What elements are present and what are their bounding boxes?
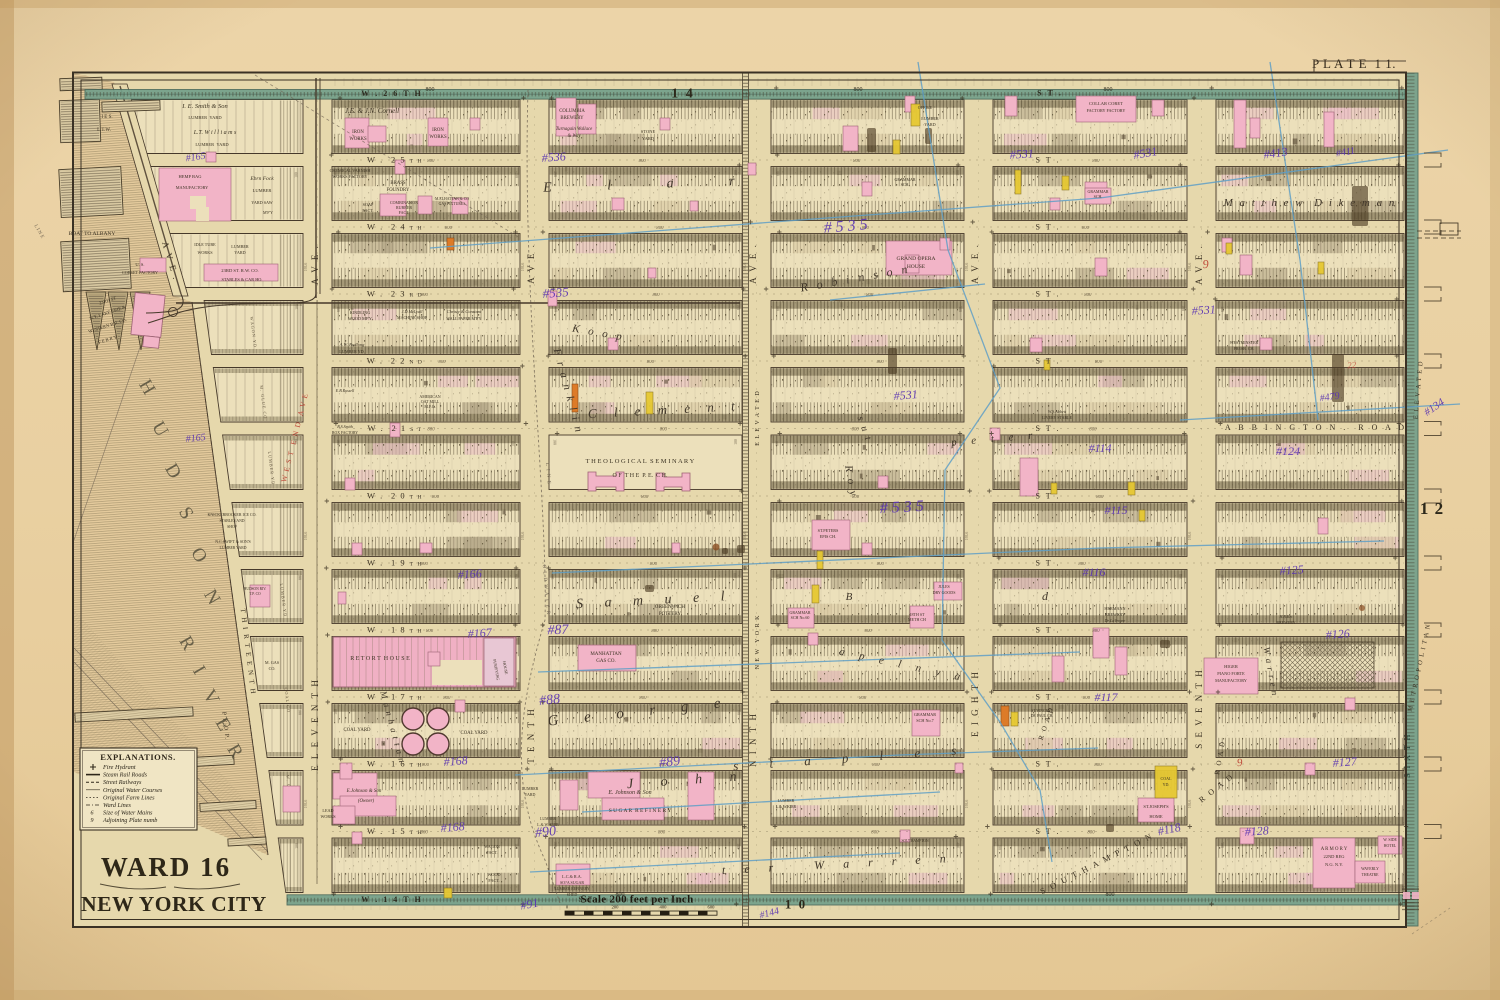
svg-text:HOUSE: HOUSE [907, 264, 926, 270]
svg-text:BREWERY: BREWERY [560, 116, 584, 121]
svg-text:LUMBER REFINERY: LUMBER REFINERY [554, 887, 589, 891]
svg-text:WOOD: WOOD [487, 872, 500, 877]
svg-text:#168: #168 [443, 753, 468, 769]
svg-text:THEATRE: THEATRE [1362, 873, 1380, 877]
svg-text:S U G A R R E F I N E R Y: S U G A R R E F I N E R Y [609, 808, 672, 814]
svg-text:800: 800 [660, 428, 668, 433]
svg-text:800: 800 [872, 763, 880, 768]
svg-text:100: 100 [1220, 842, 1224, 848]
svg-text:LUMBER: LUMBER [253, 188, 272, 193]
svg-text:T E N T H: T E N T H [526, 707, 536, 764]
svg-text:HOME: HOME [1149, 814, 1163, 819]
svg-text:#531: #531 [1191, 302, 1216, 318]
svg-text:N E W Y O R K: N E W Y O R K [755, 615, 761, 670]
svg-text:193.6: 193.6 [743, 800, 747, 809]
svg-text:800: 800 [1106, 892, 1115, 898]
svg-text:Fire Hydrant: Fire Hydrant [102, 764, 136, 771]
svg-text:100: 100 [736, 304, 740, 310]
svg-text:100: 100 [997, 844, 1001, 850]
svg-text:#88: #88 [538, 692, 560, 709]
svg-text:6: 6 [91, 811, 94, 817]
svg-text:100: 100 [775, 573, 779, 579]
svg-text:#124: #124 [1276, 444, 1300, 458]
svg-text:800: 800 [641, 495, 649, 500]
svg-text:B.S.Smith: B.S.Smith [337, 424, 353, 429]
svg-text:800: 800 [427, 428, 435, 433]
svg-text:E.Johnson & Son: E.Johnson & Son [346, 789, 382, 794]
svg-text:800: 800 [445, 226, 453, 231]
svg-text:S T .: S T . [1035, 156, 1060, 165]
svg-text:YARD: YARD [924, 122, 935, 127]
svg-text:S T .: S T . [1035, 424, 1060, 433]
svg-text:100: 100 [775, 709, 779, 715]
svg-text:ST.PETERS: ST.PETERS [818, 528, 839, 533]
svg-text:800: 800 [1084, 293, 1092, 298]
svg-text:S T .: S T . [1035, 223, 1060, 232]
svg-text:193.6: 193.6 [304, 263, 308, 272]
svg-text:WARD 16: WARD 16 [101, 852, 231, 882]
svg-text:800: 800 [865, 629, 873, 634]
svg-text:WORKS: WORKS [429, 135, 447, 140]
svg-text:100: 100 [1180, 843, 1184, 849]
svg-text:W . 2 6 T H: W . 2 6 T H [361, 89, 423, 98]
svg-text:SHED: SHED [567, 892, 578, 897]
svg-text:W . 1 4 T H: W . 1 4 T H [361, 895, 423, 904]
svg-text:STONE: STONE [641, 129, 656, 134]
svg-text:Steam Rail Roads: Steam Rail Roads [103, 772, 148, 779]
svg-text:COLUMBIA: COLUMBIA [559, 109, 585, 114]
svg-text:SOAP: SOAP [363, 202, 374, 207]
svg-text:LIVERY STABLE: LIVERY STABLE [1042, 415, 1073, 420]
svg-text:S T .: S T . [1035, 357, 1060, 366]
svg-text:100: 100 [734, 573, 738, 579]
svg-text:BRASS: BRASS [390, 181, 406, 186]
svg-text:Scale 200 feet per Inch: Scale 200 feet per Inch [580, 894, 693, 906]
svg-text:T H E O L O G I C A L S E M I: T H E O L O G I C A L S E M I N A R Y [586, 458, 695, 465]
svg-text:100: 100 [1218, 707, 1222, 713]
svg-text:LUMBER YARD: LUMBER YARD [195, 142, 229, 147]
svg-text:#531: #531 [893, 387, 918, 403]
svg-text:CORSET FACTORY: CORSET FACTORY [122, 270, 158, 275]
svg-text:100: 100 [514, 573, 518, 579]
svg-text:100: 100 [553, 707, 557, 713]
svg-text:A.W. Budlong: A.W. Budlong [339, 342, 365, 347]
svg-text:IDLE TUBE: IDLE TUBE [194, 242, 216, 247]
svg-text:800: 800 [639, 696, 647, 701]
svg-text:OFFICE: OFFICE [918, 105, 933, 110]
svg-text:193.6: 193.6 [965, 800, 969, 809]
svg-text:BOAT TO ALBANY: BOAT TO ALBANY [69, 231, 116, 237]
svg-text:#126: #126 [1325, 626, 1350, 642]
svg-text:100: 100 [956, 843, 960, 849]
svg-text:MACHINE SHOP: MACHINE SHOP [397, 315, 428, 320]
svg-text:FACT.: FACT. [488, 878, 499, 883]
svg-text:100: 100 [734, 439, 738, 445]
svg-text:800: 800 [432, 495, 440, 500]
svg-text:#90: #90 [534, 824, 556, 841]
svg-text:L.T. W i l l i a m s: L.T. W i l l i a m s [193, 130, 237, 136]
svg-text:#116: #116 [1082, 565, 1105, 579]
svg-text:800: 800 [854, 87, 863, 93]
svg-text:800: 800 [859, 696, 867, 701]
svg-text:800: 800 [658, 831, 666, 836]
svg-text:100: 100 [996, 170, 1000, 176]
svg-text:E L E V A T E D: E L E V A T E D [755, 390, 761, 446]
svg-text:800: 800 [1092, 159, 1100, 164]
svg-text:100: 100 [514, 843, 518, 849]
svg-text:BREWERY: BREWERY [1105, 612, 1125, 617]
svg-text:LUMBER YD.: LUMBER YD. [339, 349, 364, 354]
svg-text:193.6: 193.6 [965, 532, 969, 541]
svg-text:800: 800 [866, 293, 874, 298]
svg-text:STABLES & CAR HO.: STABLES & CAR HO. [222, 277, 263, 282]
svg-text:L.C.& R.A.: L.C.& R.A. [562, 874, 582, 879]
svg-text:COAL YARD: COAL YARD [461, 731, 488, 736]
svg-text:P L A T E 1 1.: P L A T E 1 1. [1312, 56, 1396, 71]
svg-text:LUMBER YARD: LUMBER YARD [220, 546, 247, 550]
svg-text:LUMBER: LUMBER [921, 116, 939, 121]
svg-text:800: 800 [427, 159, 435, 164]
svg-text:800: 800 [443, 696, 451, 701]
svg-text:WORKS: WORKS [197, 250, 213, 255]
svg-text:#168: #168 [440, 819, 465, 835]
svg-text:FACT.: FACT. [486, 850, 497, 855]
svg-text:FACTORY FACTORY: FACTORY FACTORY [1087, 108, 1126, 113]
svg-text:M. GAS: M. GAS [265, 660, 280, 665]
svg-text:800: 800 [1087, 831, 1095, 836]
svg-text:FOUNDRY: FOUNDRY [387, 188, 410, 193]
svg-text:M'F'Y: M'F'Y [263, 210, 273, 215]
svg-text:23RD ST. R.W. CO.: 23RD ST. R.W. CO. [221, 268, 258, 273]
svg-text:#167: #167 [467, 625, 493, 641]
svg-text:800: 800 [1095, 360, 1103, 365]
svg-text:100: 100 [775, 305, 779, 311]
svg-text:MANHATTAN: MANHATTAN [590, 652, 622, 657]
svg-text:LUMBER: LUMBER [522, 786, 539, 791]
svg-text:100: 100 [553, 171, 557, 177]
svg-text:BOX FACTORY: BOX FACTORY [332, 431, 358, 435]
svg-text:#127: #127 [1332, 754, 1358, 770]
svg-text:(Owner): (Owner) [358, 799, 375, 804]
svg-text:100: 100 [512, 441, 516, 447]
svg-text:Adjoining Plate numb: Adjoining Plate numb [102, 817, 157, 824]
svg-text:100: 100 [958, 440, 962, 446]
svg-text:FACT.: FACT. [399, 210, 410, 215]
svg-text:100: 100 [334, 709, 338, 715]
svg-text:GRAMMAR: GRAMMAR [914, 712, 936, 717]
svg-text:100: 100 [1218, 438, 1222, 444]
svg-text:800: 800 [1092, 629, 1100, 634]
svg-text:B: B [846, 591, 859, 603]
svg-text:#115: #115 [1104, 503, 1127, 517]
svg-text:HERMANN: HERMANN [1104, 606, 1125, 611]
svg-text:L.T.W.: L.T.W. [97, 128, 111, 133]
svg-text:193.6: 193.6 [521, 800, 525, 809]
svg-text:LEAD: LEAD [322, 808, 333, 813]
svg-text:100: 100 [997, 709, 1001, 715]
svg-text:193.6: 193.6 [1188, 800, 1192, 809]
svg-text:193.6: 193.6 [304, 532, 308, 541]
svg-text:100: 100 [958, 306, 962, 312]
svg-text:100: 100 [995, 304, 999, 310]
svg-text:800: 800 [421, 293, 429, 298]
svg-text:A V E .: A V E . [970, 243, 980, 284]
svg-text:YARD: YARD [234, 250, 245, 255]
svg-text:S T .: S T . [1035, 290, 1060, 299]
svg-text:100: 100 [773, 841, 777, 847]
svg-text:100: 100 [553, 439, 557, 445]
svg-text:100: 100 [1179, 574, 1183, 580]
svg-text:Original Farm Lines: Original Farm Lines [103, 794, 155, 801]
svg-text:A R M O R Y: A R M O R Y [1321, 847, 1348, 852]
svg-text:800: 800 [853, 159, 861, 164]
svg-text:GAS CO.: GAS CO. [596, 659, 615, 664]
svg-text:200: 200 [612, 905, 620, 910]
svg-text:800: 800 [1096, 495, 1104, 500]
svg-text:COAL YARD: COAL YARD [344, 728, 371, 733]
svg-text:T.P. CO: T.P. CO [249, 592, 261, 596]
svg-text:100: 100 [956, 574, 960, 580]
svg-text:100: 100 [553, 841, 557, 847]
svg-text:800: 800 [1089, 428, 1097, 433]
svg-text:100: 100 [334, 842, 338, 848]
svg-text:LUMBER YARD: LUMBER YARD [188, 115, 222, 120]
svg-text:100: 100 [553, 306, 557, 312]
svg-text:E I G H T H: E I G H T H [970, 670, 980, 737]
svg-text:CO.: CO. [269, 666, 276, 671]
svg-text:100: 100 [775, 170, 779, 176]
svg-text:193.6: 193.6 [743, 532, 747, 541]
svg-text:800: 800 [650, 562, 658, 567]
svg-text:800: 800 [1104, 87, 1113, 93]
svg-text:Turnagain Wallace: Turnagain Wallace [556, 127, 593, 132]
svg-text:800: 800 [656, 226, 664, 231]
svg-text:S T .: S T . [1035, 693, 1060, 702]
svg-text:I E S.: I E S. [101, 115, 112, 120]
svg-text:100: 100 [514, 708, 518, 714]
svg-text:100: 100 [775, 440, 779, 446]
svg-text:WAVERLY: WAVERLY [1361, 867, 1379, 871]
svg-text:193.6: 193.6 [521, 263, 525, 272]
svg-text:W. SIDE: W. SIDE [1383, 838, 1397, 842]
svg-text:d: d [1042, 589, 1054, 603]
svg-text:1 4: 1 4 [671, 87, 695, 102]
svg-text:J.E. & J.N. Cornell: J.E. & J.N. Cornell [345, 107, 399, 115]
svg-text:100: 100 [1181, 305, 1185, 311]
svg-text:193.6: 193.6 [304, 800, 308, 809]
svg-text:GREENWICH: GREENWICH [655, 605, 685, 610]
svg-text:100: 100 [551, 574, 555, 580]
svg-text:193.6: 193.6 [1188, 263, 1192, 272]
svg-text:J.D.McLyall: J.D.McLyall [402, 309, 424, 314]
svg-text:IRON: IRON [352, 130, 364, 135]
svg-text:#535: #535 [542, 284, 569, 301]
svg-text:100: 100 [514, 172, 518, 178]
svg-text:Ward Lines: Ward Lines [103, 802, 131, 809]
svg-text:#531: #531 [1009, 146, 1034, 162]
svg-text:Original Water Courses: Original Water Courses [103, 787, 163, 794]
svg-text:22: 22 [1347, 360, 1357, 371]
svg-text:800: 800 [1082, 226, 1090, 231]
svg-text:GRAND OPERA: GRAND OPERA [897, 256, 936, 262]
svg-text:#536: #536 [541, 149, 566, 165]
svg-text:800: 800 [421, 562, 429, 567]
svg-text:#166: #166 [457, 566, 482, 582]
svg-text:A B B I N G T O N . R O A D: A B B I N G T O N . R O A D [1225, 423, 1407, 432]
svg-text:193.6: 193.6 [965, 263, 969, 272]
svg-text:YARD: YARD [525, 792, 536, 797]
svg-text:100: 100 [956, 170, 960, 176]
svg-text:100: 100 [295, 843, 299, 849]
svg-text:U. S.: U. S. [135, 262, 144, 267]
svg-text:& Way: & Way [567, 134, 581, 139]
svg-text:LUMBER: LUMBER [540, 817, 556, 821]
svg-text:M.ELHATTAN & CO: M.ELHATTAN & CO [435, 197, 469, 201]
svg-text:R E T O R T H O U S E: R E T O R T H O U S E [350, 656, 410, 662]
svg-text:Ebrn Fock: Ebrn Fock [249, 176, 274, 182]
svg-text:LUMBER: LUMBER [231, 244, 249, 249]
svg-text:100: 100 [1179, 709, 1183, 715]
svg-text:SO?A SUGAR: SO?A SUGAR [560, 880, 584, 885]
svg-text:STABLES AND: STABLES AND [219, 519, 244, 523]
svg-text:SCH No.60: SCH No.60 [791, 615, 810, 620]
svg-text:M a t t h e w D i k e m a n: M a t t h e w D i k e m a n [1223, 197, 1397, 209]
svg-text:#114: #114 [1088, 441, 1111, 455]
svg-text:800: 800 [639, 159, 647, 164]
svg-text:MANUFACTORY: MANUFACTORY [1215, 678, 1247, 683]
svg-text:ST.JOSEPH'S: ST.JOSEPH'S [1143, 804, 1169, 809]
svg-text:A V E .: A V E . [310, 244, 320, 285]
svg-text:KINDLING: KINDLING [350, 310, 370, 315]
svg-text:193.6: 193.6 [743, 263, 747, 272]
svg-text:I. E. Smith & Son: I. E. Smith & Son [181, 103, 228, 110]
svg-text:193.6: 193.6 [521, 532, 525, 541]
svg-text:DRY GOODS: DRY GOODS [933, 590, 956, 595]
svg-text:YARD: YARD [642, 136, 655, 141]
svg-text:800: 800 [421, 831, 429, 836]
svg-text:MANUFACTORY: MANUFACTORY [176, 185, 209, 190]
svg-text:#117: #117 [1094, 690, 1118, 704]
svg-text:100: 100 [512, 306, 516, 312]
svg-text:BREWERY: BREWERY [1276, 620, 1295, 625]
svg-text:SCH.: SCH. [1094, 194, 1103, 199]
svg-text:WOOD MF'Y: WOOD MF'Y [348, 316, 372, 321]
svg-text:POTTERY: POTTERY [659, 612, 682, 617]
svg-text:#87: #87 [547, 623, 570, 639]
svg-text:100: 100 [334, 575, 338, 581]
svg-text:N.G. N.Y.: N.G. N.Y. [1325, 862, 1343, 867]
svg-text:100: 100 [297, 709, 301, 715]
svg-text:FACT.: FACT. [362, 208, 373, 213]
svg-text:100: 100 [298, 574, 302, 580]
svg-text:GAS FIXTURES: GAS FIXTURES [439, 202, 466, 206]
svg-text:SOUTHAMPTON: SOUTHAMPTON [901, 839, 928, 843]
svg-text:100: 100 [1218, 170, 1222, 176]
svg-text:800: 800 [651, 629, 659, 634]
svg-text:LUMBER: LUMBER [778, 798, 795, 803]
svg-text:A V E .: A V E . [748, 243, 758, 284]
svg-text:O F T H E P. E. C H.: O F T H E P. E. C H. [613, 473, 668, 479]
svg-text:1 0: 1 0 [785, 897, 807, 912]
svg-text:#125: #125 [1279, 562, 1304, 578]
svg-text:HUDSON RIV.: HUDSON RIV. [244, 587, 267, 591]
svg-text:400: 400 [660, 905, 668, 910]
svg-text:#165: #165 [185, 432, 206, 445]
svg-text:Size of Water Mains: Size of Water Mains [103, 810, 153, 817]
svg-text:KNICKERBOCKER ICE CO.: KNICKERBOCKER ICE CO. [207, 512, 256, 517]
svg-text:IRON: IRON [432, 128, 444, 133]
svg-text:L.&.W.KIRR: L.&.W.KIRR [776, 805, 797, 809]
svg-text:YD.: YD. [1163, 782, 1170, 787]
svg-text:S T .: S T . [1035, 827, 1060, 836]
svg-text:COAL: COAL [1161, 776, 1172, 781]
svg-text:NEW YORK CITY: NEW YORK CITY [81, 892, 267, 916]
svg-text:YARD SAW: YARD SAW [251, 200, 272, 205]
svg-text:800: 800 [647, 360, 655, 365]
svg-text:100: 100 [1220, 574, 1224, 580]
svg-text:HOTEL: HOTEL [1384, 844, 1397, 848]
svg-text:100: 100 [736, 709, 740, 715]
svg-text:S T .: S T . [1035, 760, 1060, 769]
svg-text:DE PAUL CH.: DE PAUL CH. [1031, 714, 1054, 718]
svg-text:9: 9 [1202, 257, 1209, 271]
svg-text:S T .: S T . [1035, 492, 1060, 501]
svg-text:100: 100 [295, 172, 299, 178]
svg-text:HEMP BAG: HEMP BAG [179, 174, 203, 179]
svg-text:EPIS CH.: EPIS CH. [820, 534, 837, 539]
svg-text:100: 100 [336, 439, 340, 445]
svg-text:#89: #89 [658, 754, 680, 771]
svg-text:#128: #128 [1244, 823, 1269, 839]
svg-text:HIGER: HIGER [1224, 664, 1238, 669]
svg-text:S T .: S T . [1035, 626, 1060, 635]
svg-text:ST.VINCENT: ST.VINCENT [1031, 709, 1053, 713]
svg-text:100: 100 [1181, 439, 1185, 445]
svg-text:M.F.G.: M.F.G. [424, 404, 435, 409]
svg-text:800: 800 [652, 293, 660, 298]
svg-text:H.B.Ket: H.B.Ket [1279, 614, 1294, 619]
svg-text:PIANO FORTE: PIANO FORTE [1217, 671, 1245, 676]
svg-text:SCH No.7: SCH No.7 [916, 718, 933, 723]
svg-text:W.S.Abbett: W.S.Abbett [1048, 409, 1067, 414]
svg-text:JULES: JULES [938, 584, 950, 589]
svg-text:600: 600 [708, 905, 716, 910]
svg-text:N.C.SWIFT & SON'S: N.C.SWIFT & SON'S [215, 539, 251, 544]
svg-text:WESTMINSTER: WESTMINSTER [1230, 340, 1259, 345]
svg-text:100: 100 [1179, 170, 1183, 176]
svg-text:COLLAR CORET: COLLAR CORET [1089, 101, 1123, 106]
svg-text:S E V E N T H: S E V E N T H [1194, 668, 1204, 749]
svg-text:1 2: 1 2 [1420, 499, 1444, 518]
svg-text:WALL PAPER M'F'Y: WALL PAPER M'F'Y [446, 316, 481, 321]
svg-text:A V E .: A V E . [526, 243, 536, 284]
svg-text:100: 100 [736, 843, 740, 849]
svg-text:800: 800 [438, 360, 446, 365]
svg-text:SCH.: SCH. [901, 182, 910, 187]
svg-text:EXPLANATIONS.: EXPLANATIONS. [100, 752, 176, 762]
svg-text:# 5 3 5: # 5 3 5 [879, 498, 924, 517]
svg-text:800: 800 [877, 360, 885, 365]
svg-text:800: 800 [426, 87, 435, 93]
svg-text:100: 100 [995, 574, 999, 580]
svg-text:100: 100 [1220, 306, 1224, 312]
svg-text:S T .: S T . [1035, 559, 1060, 568]
svg-text:WAGON: WAGON [484, 844, 500, 849]
svg-text:E L E V E N T H: E L E V E N T H [310, 678, 320, 771]
svg-text:9: 9 [91, 818, 94, 824]
svg-text:METH CH: METH CH [908, 617, 926, 622]
svg-text:800: 800 [871, 831, 879, 836]
